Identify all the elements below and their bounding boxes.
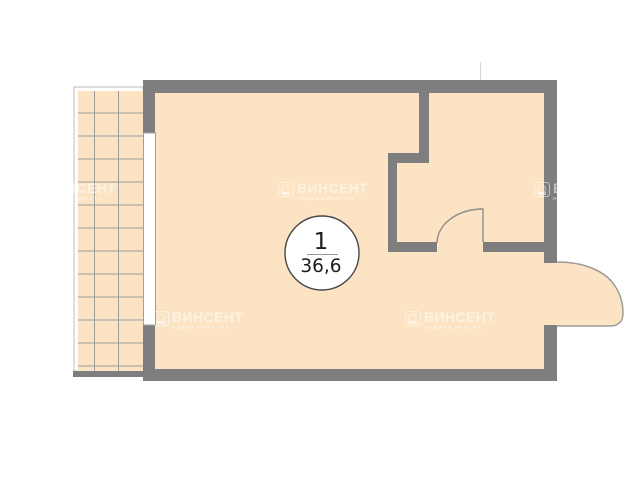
- entrance-opening-floor: [544, 263, 557, 325]
- wall-top: [143, 80, 557, 93]
- balcony-window: [144, 133, 156, 325]
- wall-left-upper: [143, 80, 155, 133]
- partition-step: [388, 153, 429, 163]
- room-divider-left: [388, 242, 437, 252]
- area-label: 1 36,6: [285, 216, 359, 290]
- room-number: 1: [314, 229, 329, 255]
- balcony-bottom-wall: [73, 371, 143, 377]
- balcony-floor: [78, 91, 143, 371]
- floorplan-svg: 1 36,6: [0, 0, 640, 480]
- wall-right-upper: [544, 80, 557, 263]
- entrance-swing-area: [557, 262, 623, 326]
- wall-left-lower: [143, 325, 155, 381]
- partition-upper-vertical: [419, 93, 429, 163]
- room-area: 36,6: [300, 256, 341, 277]
- room-divider-right: [483, 242, 544, 252]
- partition-lower-vertical: [388, 163, 397, 252]
- wall-bottom: [143, 369, 557, 381]
- floorplan-canvas: 1 36,6 ВИНСЕНТ НЕДВИЖИМОСТЬ ВИНСЕНТ НЕДВ…: [0, 0, 640, 480]
